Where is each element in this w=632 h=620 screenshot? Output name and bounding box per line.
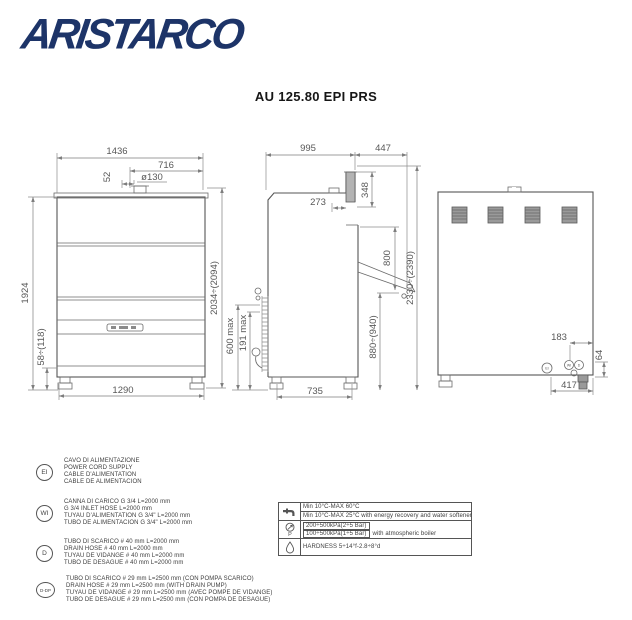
dim-side-total-height: 2330÷(2390) — [405, 251, 416, 305]
water-spec-table: P Min 10°C-MAX 60°C Min 10°C-MAX 25°C wi… — [278, 502, 472, 556]
datasheet-page: ARISTARCO AU 125.80 EPI PRS — [0, 0, 632, 620]
marker-wi: WI — [567, 364, 571, 368]
side-view-dimensions: 995 447 348 273 800 2330÷(2390) 880÷(940… — [225, 143, 421, 400]
dim-side-open-depth: 447 — [375, 143, 391, 154]
wi-symbol: WI — [36, 505, 53, 522]
exhaust-duct — [346, 172, 355, 202]
vent-grilles — [452, 207, 577, 223]
dim-side-table-height: 880÷(940) — [368, 315, 379, 358]
side-view-outline — [252, 172, 415, 389]
water-drop-icon — [279, 539, 300, 555]
dim-front-feet-span: 1290 — [112, 385, 133, 396]
dim-front-height: 1924 — [20, 282, 31, 303]
control-panel-buttons — [111, 326, 136, 329]
drain-hose — [252, 288, 268, 372]
d-dp-symbol: D-DP — [36, 582, 55, 598]
legend-line: POWER CORD SUPPLY — [64, 465, 142, 472]
pressure-gauge-icon: P — [279, 521, 300, 539]
dim-front-overall-width: 1436 — [106, 146, 127, 157]
legend-line: TUBO DE DESAGUE # 40 mm L=2000 mm — [64, 560, 185, 567]
dim-rear-conn-inset: 183 — [551, 332, 567, 343]
legend-line: G 3/4 INLET HOSE L=2000 mm — [64, 506, 192, 513]
spec-table-rows: Min 10°C-MAX 60°C Min 10°C-MAX 25°C with… — [301, 503, 471, 555]
pressure-value: 200÷500kPa(2÷5 Bar) — [303, 522, 370, 530]
rear-view: EI WI D 183 64 417 — [438, 187, 608, 395]
water-tap-icon — [279, 503, 300, 521]
spec-table-icon-column: P — [279, 503, 301, 555]
top-bracket — [512, 187, 516, 190]
pressure-value: 100÷500kPa(1÷5 Bar) — [303, 530, 370, 538]
dim-front-plinth-height: 58÷(118) — [36, 328, 47, 365]
legend-line: TUYAU DE VIDANGE # 29 mm L=2500 mm (AVEC… — [66, 590, 272, 597]
wi-symbol-label: WI — [41, 510, 49, 517]
dim-front-hole-offset: 52 — [102, 172, 113, 183]
legend-item-power-cord: EI CAVO DI ALIMENTAZIONE POWER CORD SUPP… — [36, 458, 142, 486]
dim-side-depth: 995 — [300, 143, 316, 154]
legend-line: TUYAU D'ALIMENTATION G 3/4" L=2000 mm — [64, 513, 192, 520]
ei-symbol-label: EI — [41, 469, 47, 476]
d-symbol-label: D — [42, 550, 47, 557]
dim-side-feet-span: 735 — [307, 386, 323, 397]
legend-line: CAVO DI ALIMENTAZIONE — [64, 458, 142, 465]
front-view: 1436 716 52 ø130 1924 58÷(118) 2034÷(209… — [20, 146, 226, 400]
legend-line: TUYAU DE VIDANGE # 40 mm L=2000 mm — [64, 553, 185, 560]
legend-line: CABLE DE ALIMENTACION — [64, 479, 142, 486]
legend-line: TUBO DI SCARICO # 40 mm L=2000 mm — [64, 539, 185, 546]
spec-temp-energy-recovery: Min 10°C-MAX 25°C with energy recovery a… — [301, 512, 471, 521]
spec-hardness: HARDNESS 5÷14°f-2.8÷8°d — [301, 539, 471, 555]
marker-ei: EI — [545, 367, 548, 371]
ei-symbol: EI — [36, 464, 53, 481]
legend-line: TUBO DE DESAGUE # 29 mm L=2500 mm (CON P… — [66, 597, 272, 604]
legend-line: CANNA DI CARICO G 3/4 L=2000 mm — [64, 499, 192, 506]
legend-line: CABLE D'ALIMENTATION — [64, 472, 142, 479]
legend-item-drain-pump-hose: D-DP TUBO DI SCARICO # 29 mm L=2500 mm (… — [36, 576, 272, 604]
dim-side-duct-height: 348 — [360, 182, 371, 198]
legend-line: DRAIN HOSE # 40 mm L=2000 mm — [64, 546, 185, 553]
drain-outlet — [252, 348, 260, 356]
rear-connections: EI WI D — [542, 361, 584, 377]
legend-line: TUBO DI SCARICO # 29 mm L=2500 mm (CON P… — [66, 576, 272, 583]
legend-item-inlet-hose: WI CANNA DI CARICO G 3/4 L=2000 mm G 3/4… — [36, 499, 192, 527]
front-view-outline — [54, 186, 208, 389]
pressure-suffix: with atmospheric boiler — [373, 531, 437, 537]
spec-pressure-standard: 200÷500kPa(2÷5 Bar) — [301, 521, 471, 530]
legend-line: DRAIN HOSE # 29 mm L=2500 mm (WITH DRAIN… — [66, 583, 272, 590]
marker-d: D — [578, 364, 581, 368]
dim-side-drain-min: 191 max — [238, 315, 249, 352]
dim-side-opening: 800 — [382, 250, 393, 266]
dim-side-duct-offset: 273 — [310, 197, 326, 208]
gauge-letter: P — [288, 532, 292, 537]
dim-side-drain-max: 600 max — [225, 318, 236, 355]
front-view-dimensions: 1436 716 52 ø130 1924 58÷(118) 2034÷(209… — [20, 146, 226, 400]
legend-line: TUBO DE ALIMENTACION G 3/4" L=2000 mm — [64, 520, 192, 527]
dim-front-open-height: 2034÷(2094) — [209, 261, 220, 315]
d-symbol: D — [36, 545, 53, 562]
side-view: 995 447 348 273 800 2330÷(2390) 880÷(940… — [225, 143, 421, 400]
dim-rear-conn-span: 417 — [561, 380, 577, 391]
dim-front-hood-width: 716 — [158, 160, 174, 171]
dim-rear-conn-height: 64 — [594, 350, 605, 361]
legend-item-drain-hose: D TUBO DI SCARICO # 40 mm L=2000 mm DRAI… — [36, 539, 185, 567]
technical-drawing: 1436 716 52 ø130 1924 58÷(118) 2034÷(209… — [0, 0, 632, 445]
dim-front-hole-diameter: ø130 — [141, 172, 163, 183]
d-dp-symbol-label: D-DP — [40, 588, 51, 593]
spec-temp-standard: Min 10°C-MAX 60°C — [301, 503, 471, 512]
spec-pressure-boiler: 100÷500kPa(1÷5 Bar)with atmospheric boil… — [301, 530, 471, 539]
